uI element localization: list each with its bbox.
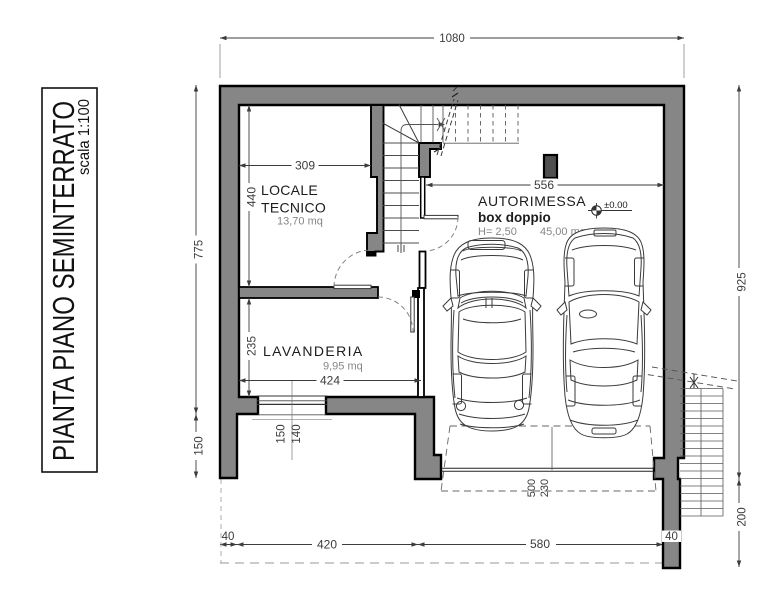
svg-text:scala 1:100: scala 1:100	[76, 99, 93, 175]
svg-text:150: 150	[276, 424, 288, 443]
svg-text:150: 150	[194, 436, 206, 455]
svg-text:775: 775	[194, 240, 206, 259]
svg-text:13,70 mq: 13,70 mq	[277, 216, 323, 228]
svg-text:TECNICO: TECNICO	[261, 200, 326, 216]
svg-text:420: 420	[317, 538, 337, 552]
svg-text:40: 40	[665, 531, 678, 543]
svg-text:9,95 mq: 9,95 mq	[323, 361, 363, 373]
svg-text:580: 580	[530, 537, 550, 551]
svg-text:230: 230	[539, 479, 551, 497]
svg-text:424: 424	[320, 374, 340, 388]
svg-text:556: 556	[534, 178, 554, 192]
svg-text:box doppio: box doppio	[478, 210, 551, 225]
svg-text:LOCALE: LOCALE	[261, 182, 318, 198]
svg-text:AUTORIMESSA: AUTORIMESSA	[478, 193, 586, 209]
svg-text:±0.00: ±0.00	[604, 200, 628, 211]
svg-text:LAVANDERIA: LAVANDERIA	[263, 343, 364, 359]
svg-text:235: 235	[245, 336, 259, 356]
svg-text:925: 925	[737, 272, 749, 291]
svg-text:H= 2,50: H= 2,50	[478, 226, 517, 238]
svg-text:200: 200	[737, 507, 749, 526]
svg-text:309: 309	[295, 159, 315, 173]
svg-text:40: 40	[222, 531, 235, 543]
svg-text:500: 500	[526, 479, 538, 497]
svg-text:440: 440	[245, 187, 259, 207]
svg-text:140: 140	[291, 424, 303, 443]
svg-text:1080: 1080	[439, 33, 465, 45]
